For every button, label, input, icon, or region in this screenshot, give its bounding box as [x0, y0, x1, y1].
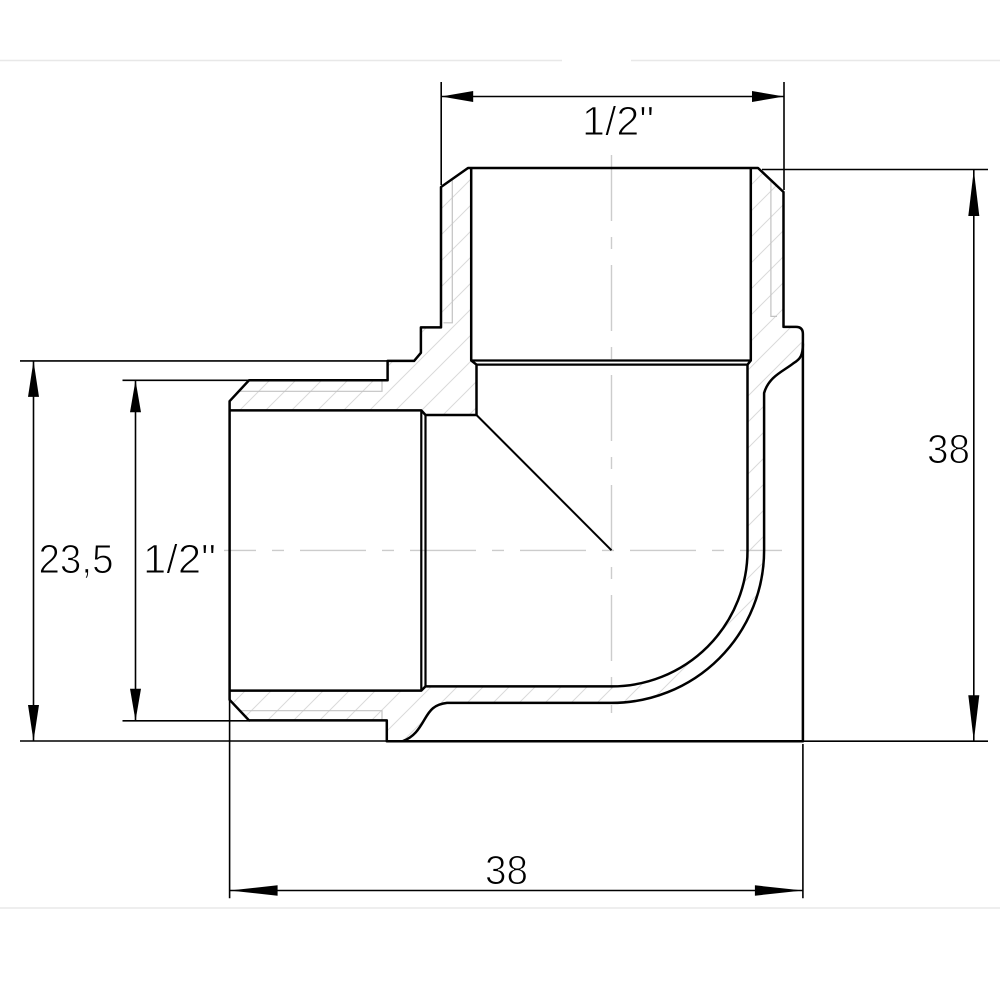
svg-text:38: 38: [485, 847, 528, 893]
svg-text:1/2": 1/2": [582, 98, 654, 144]
svg-text:23,5: 23,5: [39, 536, 114, 582]
svg-text:38: 38: [927, 426, 970, 472]
svg-text:1/2": 1/2": [143, 536, 216, 582]
